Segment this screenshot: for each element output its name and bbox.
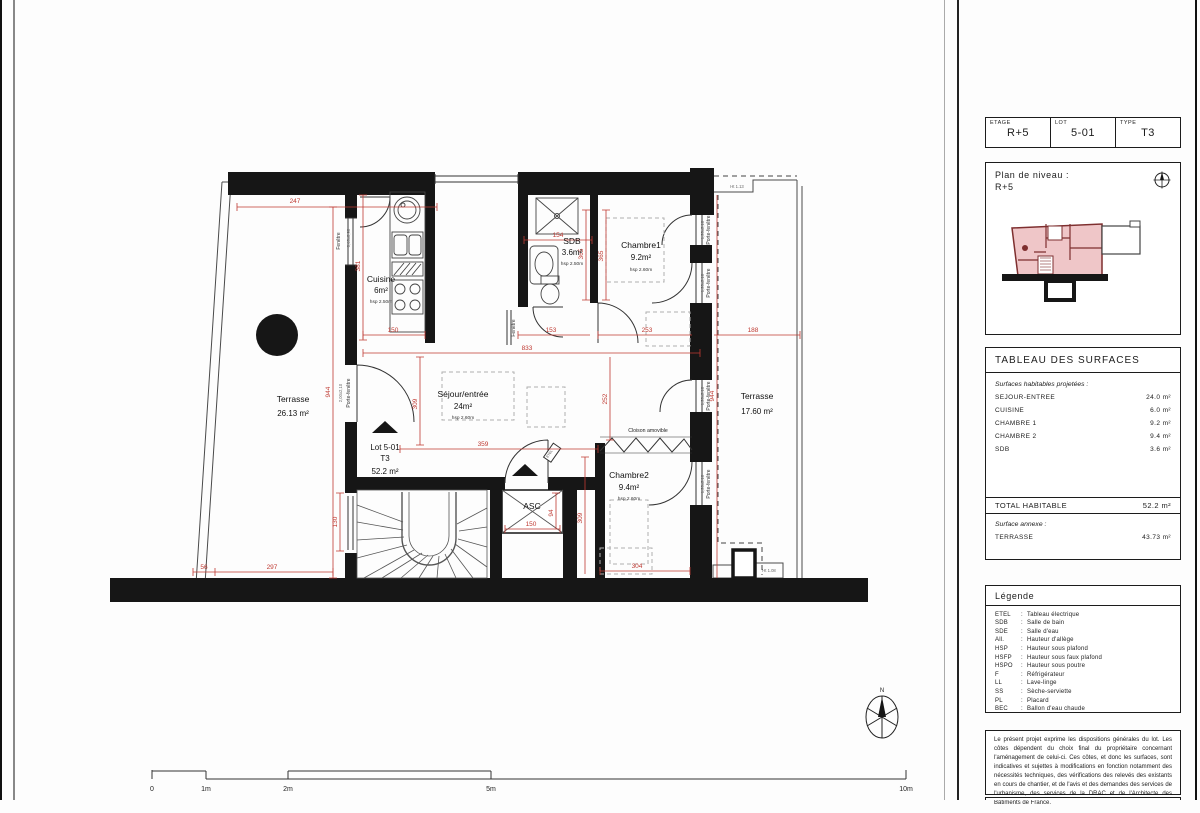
svg-text:2m: 2m <box>283 786 293 793</box>
svg-text:1,20x2,10: 1,20x2,10 <box>700 474 705 493</box>
north-label: N <box>880 688 884 694</box>
legend-item: BEC:Ballon d'eau chaude <box>995 706 1171 712</box>
surface-table-title: TABLEAU DES SURFACES <box>986 348 1180 373</box>
ht113-label: Ht 1.13 <box>730 184 744 189</box>
room-asc: ASC <box>523 501 540 511</box>
surface-row: SEJOUR-ENTREE24.0 m² <box>995 394 1171 401</box>
svg-text:252: 252 <box>602 393 609 404</box>
level-plan-box: Plan de niveau : R+5 <box>985 162 1181 335</box>
duct-block <box>733 550 755 578</box>
legend-item: SDB:Salle de bain <box>995 620 1171 626</box>
svg-text:359: 359 <box>478 441 489 448</box>
svg-text:94: 94 <box>548 509 555 517</box>
legend-item: SDE:Salle d'eau <box>995 629 1171 635</box>
mini-compass-icon <box>1152 170 1172 190</box>
floorplan-sheet: { "header_table": { "cells": [ {"label":… <box>0 0 1200 800</box>
legend-item: HSP:Hauteur sous plafond <box>995 646 1171 652</box>
scale-labels: 0 1m 2m 5m 10m <box>150 786 913 793</box>
legend-box: Légende ETEL:Tableau électrique SDB:Sall… <box>985 585 1181 713</box>
total-row: TOTAL HABITABLE 52.2 m² <box>986 497 1180 514</box>
svg-text:154: 154 <box>553 232 564 239</box>
surface-row: CHAMBRE 19.2 m² <box>995 420 1171 427</box>
total-label: TOTAL HABITABLE <box>995 501 1067 510</box>
room-terrasse-left: Terrasse <box>277 394 310 404</box>
svg-text:56: 56 <box>200 564 208 571</box>
svg-text:Porte-fenêtre: Porte-fenêtre <box>706 469 712 498</box>
svg-text:247: 247 <box>290 198 301 205</box>
annex-row: TERRASSE43.73 m² <box>995 534 1171 541</box>
svg-text:130: 130 <box>332 516 339 527</box>
svg-text:Porte-fenêtre: Porte-fenêtre <box>706 268 712 297</box>
mini-plan-thumbnail <box>994 208 1172 328</box>
surface-row: CHAMBRE 29.4 m² <box>995 433 1171 440</box>
header-cell-etage: ETAGE R+5 <box>986 118 1051 147</box>
svg-text:2,00x2,10: 2,00x2,10 <box>338 383 343 402</box>
svg-text:Porte-fenêtre: Porte-fenêtre <box>346 378 352 407</box>
svg-text:365: 365 <box>598 250 605 261</box>
header-cell-lot: LOT 5-01 <box>1051 118 1116 147</box>
walls <box>110 168 868 602</box>
svg-text:297: 297 <box>267 564 278 571</box>
surface-subtitle: Surfaces habitables projetées : <box>995 381 1171 388</box>
svg-text:6m²: 6m² <box>374 286 388 295</box>
lot-value: 5-01 <box>1051 127 1115 139</box>
header-cell-type: TYPE T3 <box>1116 118 1180 147</box>
svg-text:150: 150 <box>388 327 399 334</box>
etage-label: ETAGE <box>986 118 1050 126</box>
svg-text:0: 0 <box>150 786 154 793</box>
legend-item: LL:Lave-linge <box>995 680 1171 686</box>
svg-text:Fenêtre: Fenêtre <box>336 232 342 249</box>
svg-text:9.2m²: 9.2m² <box>631 253 652 262</box>
svg-text:5m: 5m <box>486 786 496 793</box>
lot-line3: 52.2 m² <box>371 467 398 476</box>
level-plan-level: R+5 <box>995 182 1014 192</box>
svg-text:24m²: 24m² <box>454 402 473 411</box>
svg-text:1,20x2,10: 1,20x2,10 <box>700 273 705 292</box>
lot-label: LOT <box>1051 118 1115 126</box>
svg-text:833: 833 <box>522 345 533 352</box>
level-plan-title: Plan de niveau : <box>995 170 1069 180</box>
svg-text:9.4m²: 9.4m² <box>619 483 640 492</box>
disclaimer-text: Le présent projet exprime les dispositio… <box>986 731 1180 813</box>
total-value: 52.2 m² <box>1143 501 1171 510</box>
kitchen-fixtures <box>390 192 425 332</box>
svg-text:1,20x2,10: 1,20x2,10 <box>700 386 705 405</box>
annex-subtitle: Surface annexe : <box>995 521 1171 528</box>
svg-text:304: 304 <box>632 563 643 570</box>
room-sdb: SDB <box>563 236 581 246</box>
legend-item: All.:Hauteur d'allège <box>995 637 1171 643</box>
svg-text:1m: 1m <box>201 786 211 793</box>
room-chambre1: Chambre1 <box>621 240 661 250</box>
svg-text:150: 150 <box>526 521 537 528</box>
room-terrasse-right: Terrasse <box>741 391 774 401</box>
staircase <box>357 490 487 578</box>
type-value: T3 <box>1116 127 1180 139</box>
scale-bar <box>152 770 906 779</box>
svg-text:3.6m²: 3.6m² <box>562 248 583 257</box>
removable-partition <box>600 437 692 453</box>
legend-item: F:Réfrigérateur <box>995 672 1171 678</box>
legend-item: PL:Placard <box>995 698 1171 704</box>
svg-text:hsp 2.50m: hsp 2.50m <box>370 299 392 305</box>
ht108-label: Ht 1.08 <box>762 568 776 573</box>
svg-text:309: 309 <box>412 398 419 409</box>
lot-line1: Lot 5-01 <box>370 443 400 452</box>
lot-line2: T3 <box>380 454 390 463</box>
svg-text:153: 153 <box>546 327 557 334</box>
room-cuisine: Cuisine <box>367 274 396 284</box>
legend-item: HSPO:Hauteur sous poutre <box>995 663 1171 669</box>
svg-text:hsp 2.60m: hsp 2.60m <box>452 415 474 421</box>
svg-text:253: 253 <box>642 327 653 334</box>
svg-text:188: 188 <box>748 327 759 334</box>
svg-text:Porte-fenêtre: Porte-fenêtre <box>706 381 712 410</box>
etage-value: R+5 <box>986 127 1050 139</box>
type-label: TYPE <box>1116 118 1180 126</box>
svg-text:hsp 2.50m: hsp 2.50m <box>561 261 583 267</box>
room-chambre2: Chambre2 <box>609 470 649 480</box>
legend-item: HSFP:Hauteur sous faux plafond <box>995 655 1171 661</box>
surface-table-box: TABLEAU DES SURFACES Surfaces habitables… <box>985 347 1181 560</box>
cloison-label: Cloison amovible <box>628 428 668 434</box>
disclaimer-box: Le présent projet exprime les dispositio… <box>985 730 1181 795</box>
north-compass-icon: N <box>866 688 898 738</box>
room-sejour: Séjour/entrée <box>437 389 488 399</box>
sheet-right-border <box>1195 0 1197 800</box>
svg-text:0,40x0,90: 0,40x0,90 <box>346 228 351 247</box>
svg-text:1,20x2,10: 1,20x2,10 <box>700 220 705 239</box>
surface-row: SDB3.6 m² <box>995 446 1171 453</box>
lot-boundary-dashed <box>714 176 797 575</box>
svg-text:17.60 m²: 17.60 m² <box>741 407 773 416</box>
etel-box: ETEL <box>544 443 561 462</box>
svg-text:hsp 2.60m: hsp 2.60m <box>630 267 652 273</box>
svg-text:Fenêtre: Fenêtre <box>511 319 517 336</box>
terrace-column <box>256 314 298 356</box>
svg-text:Porte-fenêtre: Porte-fenêtre <box>706 215 712 244</box>
svg-text:944: 944 <box>325 386 332 397</box>
svg-text:26.13 m²: 26.13 m² <box>277 409 309 418</box>
svg-text:10m: 10m <box>899 786 913 793</box>
legend-item: ETEL:Tableau électrique <box>995 612 1171 618</box>
svg-text:381: 381 <box>355 260 362 271</box>
floor-plan-drawing: ETEL 247 944 381 150 833 154 <box>0 0 960 800</box>
header-table: ETAGE R+5 LOT 5-01 TYPE T3 <box>985 117 1181 148</box>
svg-text:hsp 2.60m: hsp 2.60m <box>618 496 640 502</box>
legend-item: SS:Sèche-serviette <box>995 689 1171 695</box>
surface-row: CUISINE6.0 m² <box>995 407 1171 414</box>
svg-text:309: 309 <box>577 512 584 523</box>
legend-title: Légende <box>986 586 1180 606</box>
